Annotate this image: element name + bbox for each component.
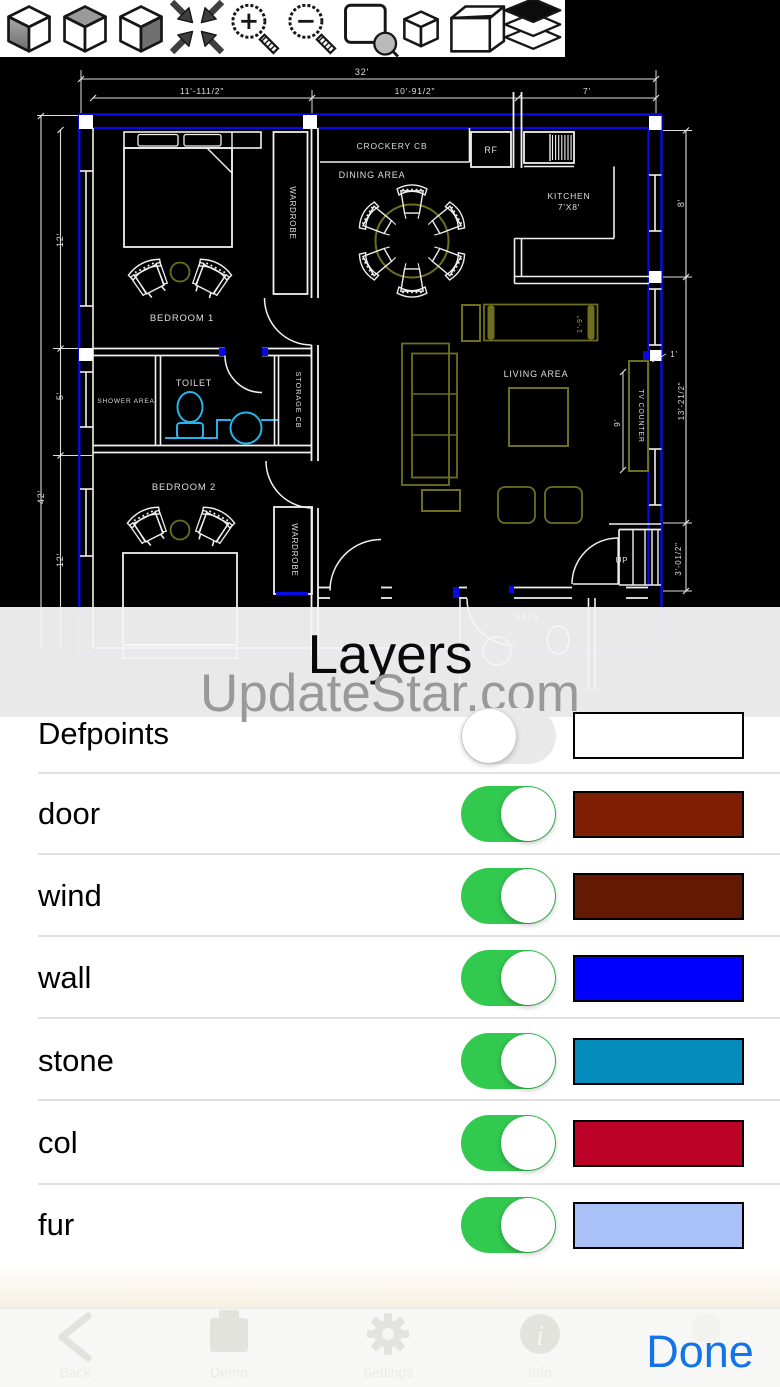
svg-text:Demo: Demo: [210, 1364, 248, 1380]
svg-text:Settings: Settings: [363, 1364, 414, 1380]
svg-text:Back: Back: [59, 1364, 91, 1380]
svg-text:Info: Info: [528, 1364, 552, 1380]
svg-text:i: i: [536, 1321, 544, 1352]
